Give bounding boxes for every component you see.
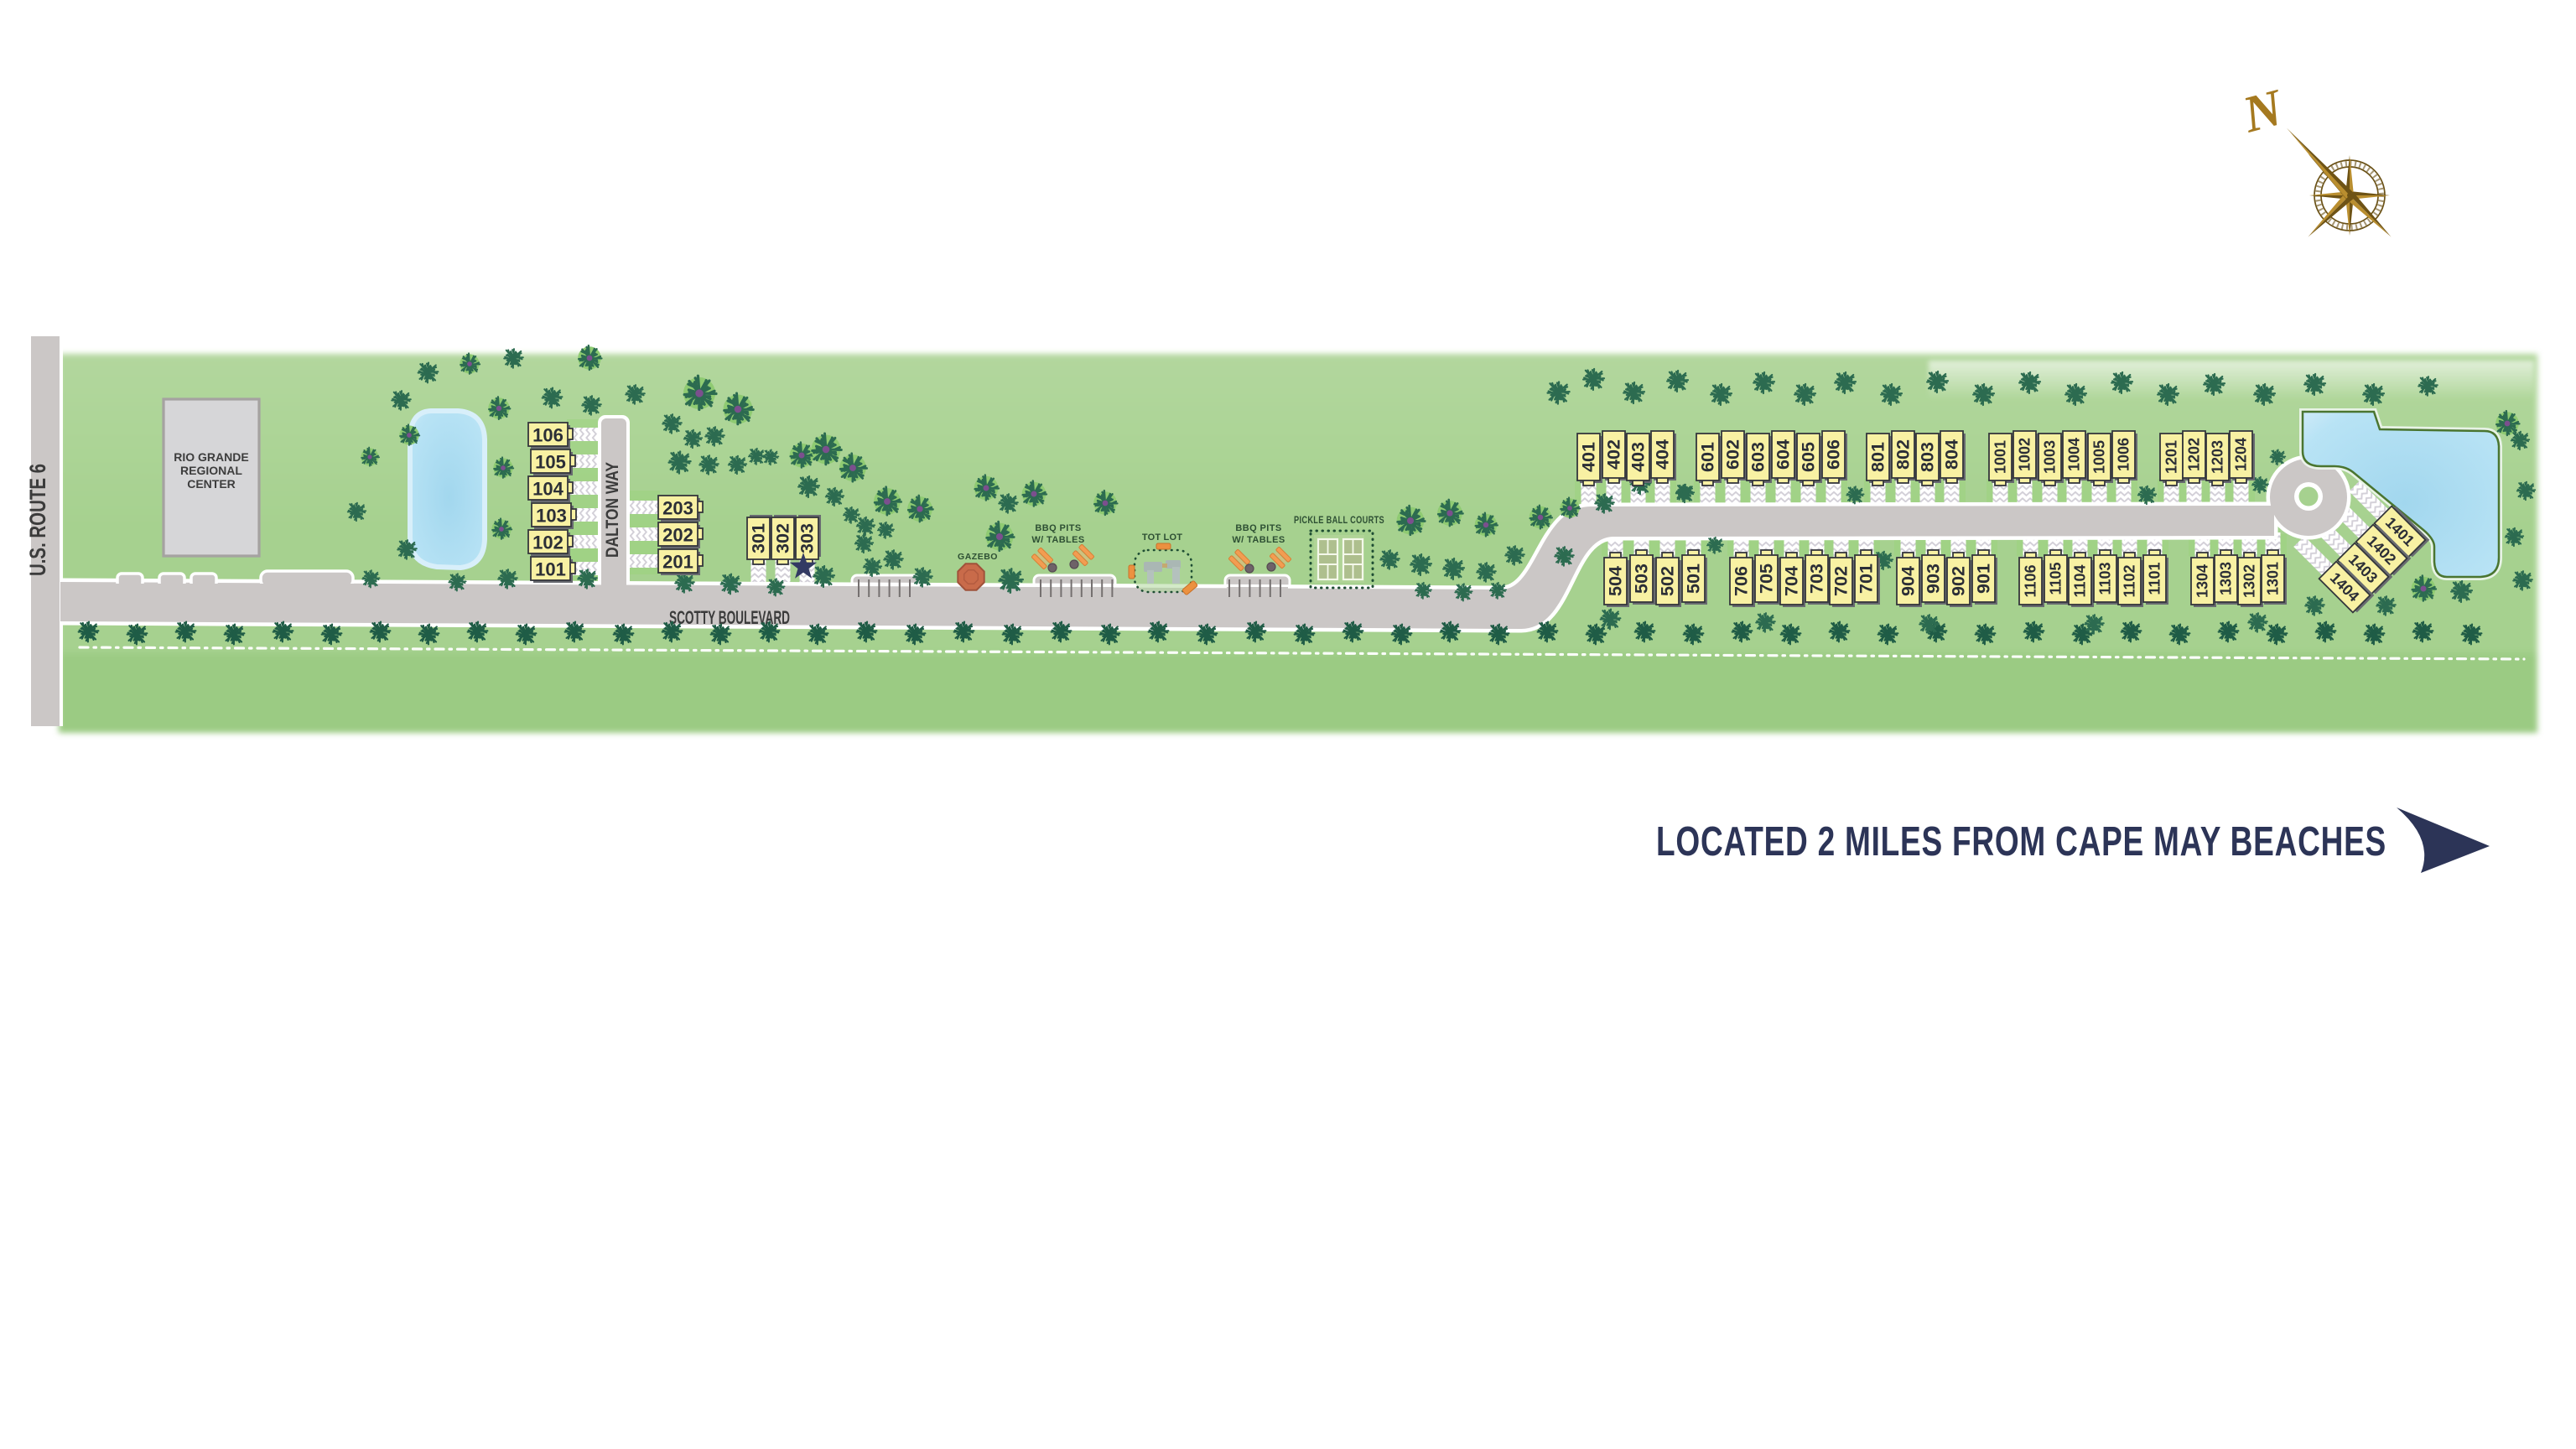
svg-text:RIO GRANDE: RIO GRANDE (174, 450, 248, 464)
svg-text:1102: 1102 (2122, 564, 2138, 597)
svg-text:PICKLE BALL COURTS: PICKLE BALL COURTS (1294, 514, 1384, 526)
svg-text:U.S. ROUTE 6: U.S. ROUTE 6 (25, 464, 50, 576)
svg-text:1001: 1001 (1992, 440, 2009, 474)
svg-text:CENTER: CENTER (187, 477, 236, 491)
svg-text:604: 604 (1774, 439, 1794, 470)
svg-text:DALTON WAY: DALTON WAY (603, 462, 622, 558)
svg-text:403: 403 (1628, 442, 1649, 472)
svg-text:1303: 1303 (2218, 562, 2235, 595)
svg-text:1002: 1002 (2017, 438, 2033, 471)
svg-text:702: 702 (1831, 566, 1851, 596)
svg-text:601: 601 (1698, 442, 1718, 472)
svg-text:502: 502 (1658, 566, 1678, 596)
svg-text:404: 404 (1653, 439, 1673, 470)
svg-text:803: 803 (1918, 442, 1938, 472)
svg-text:104: 104 (532, 479, 563, 500)
svg-text:103: 103 (536, 506, 567, 527)
svg-text:801: 801 (1868, 442, 1888, 472)
svg-text:105: 105 (535, 452, 566, 473)
svg-text:901: 901 (1974, 563, 1994, 594)
svg-text:106: 106 (532, 425, 563, 446)
svg-text:501: 501 (1684, 563, 1704, 594)
svg-text:1203: 1203 (2210, 440, 2226, 474)
svg-text:302: 302 (773, 523, 793, 553)
svg-text:102: 102 (532, 532, 563, 553)
svg-text:1006: 1006 (2116, 438, 2132, 471)
svg-text:503: 503 (1632, 563, 1652, 594)
svg-text:LOCATED 2 MILES FROM CAPE MAY: LOCATED 2 MILES FROM CAPE MAY BEACHES (1656, 819, 2386, 865)
svg-text:TOT LOT: TOT LOT (1142, 532, 1182, 543)
svg-text:602: 602 (1723, 439, 1743, 470)
svg-text:303: 303 (797, 523, 818, 553)
svg-text:101: 101 (535, 559, 566, 580)
svg-text:703: 703 (1807, 563, 1827, 594)
svg-text:BBQ PITS: BBQ PITS (1035, 523, 1081, 533)
svg-text:1202: 1202 (2186, 438, 2203, 471)
svg-text:1201: 1201 (2163, 440, 2180, 474)
svg-text:1103: 1103 (2097, 562, 2114, 595)
svg-text:706: 706 (1732, 566, 1752, 596)
svg-text:402: 402 (1604, 439, 1624, 470)
svg-text:1204: 1204 (2233, 438, 2250, 471)
svg-text:GAZEBO: GAZEBO (958, 552, 998, 562)
svg-text:203: 203 (662, 498, 693, 519)
svg-text:704: 704 (1782, 566, 1802, 596)
svg-text:1003: 1003 (2042, 440, 2059, 474)
svg-text:BBQ PITS: BBQ PITS (1235, 523, 1281, 533)
svg-text:1301: 1301 (2265, 562, 2282, 595)
svg-text:1101: 1101 (2147, 562, 2163, 595)
svg-text:802: 802 (1893, 439, 1914, 470)
svg-text:904: 904 (1898, 566, 1919, 596)
svg-text:902: 902 (1949, 566, 1969, 596)
svg-text:603: 603 (1748, 442, 1768, 472)
svg-text:504: 504 (1606, 566, 1626, 596)
svg-text:1105: 1105 (2048, 562, 2064, 595)
svg-text:401: 401 (1579, 442, 1599, 472)
svg-text:1304: 1304 (2194, 564, 2211, 598)
svg-text:1106: 1106 (2023, 564, 2039, 597)
svg-text:W/ TABLES: W/ TABLES (1031, 535, 1084, 545)
svg-text:606: 606 (1824, 439, 1844, 470)
svg-text:1004: 1004 (2066, 438, 2083, 471)
svg-text:903: 903 (1924, 563, 1944, 594)
svg-text:705: 705 (1757, 563, 1777, 594)
svg-text:1005: 1005 (2091, 440, 2108, 474)
svg-text:1302: 1302 (2241, 564, 2258, 598)
svg-text:1104: 1104 (2072, 564, 2089, 597)
svg-text:202: 202 (662, 525, 693, 546)
svg-text:201: 201 (662, 552, 693, 573)
svg-text:REGIONAL: REGIONAL (180, 464, 242, 477)
svg-text:W/ TABLES: W/ TABLES (1232, 535, 1285, 545)
svg-text:605: 605 (1799, 442, 1819, 472)
svg-text:301: 301 (749, 523, 769, 553)
svg-text:701: 701 (1857, 563, 1877, 594)
svg-text:804: 804 (1942, 439, 1962, 470)
